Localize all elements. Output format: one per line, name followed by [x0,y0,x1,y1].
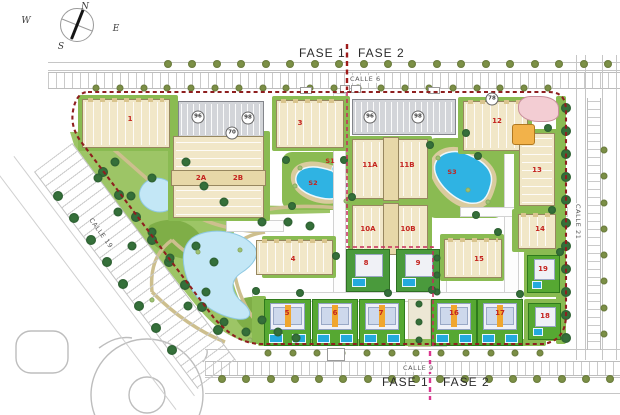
tree [182,158,191,167]
tree [164,60,172,68]
tree [521,85,528,92]
building-number-3: 3 [298,119,303,127]
tree [242,328,251,337]
tree [462,350,469,357]
tree [180,280,190,290]
tree [533,375,541,383]
pool-s3 [435,152,492,204]
tree [378,85,385,92]
tree [449,85,456,92]
tree [512,350,519,357]
tree [601,278,608,285]
villa-pool [505,334,518,343]
building-v8 [346,249,390,292]
tree [428,286,436,294]
park-plaza-inner [229,259,237,267]
tree [531,60,539,68]
villa-pool [533,328,544,336]
tree [509,375,517,383]
tree [416,319,423,326]
tree [238,248,243,253]
tree [537,350,544,357]
tree [220,198,229,207]
tree [252,287,260,295]
tree [315,375,323,383]
building-v5 [264,299,311,346]
tree [548,206,556,214]
tree [311,60,319,68]
pool-label-S2: S2 [308,179,317,187]
tree [286,60,294,68]
tree [416,337,423,344]
tree [487,350,494,357]
villa-pool [387,334,400,343]
fase1-top-label: FASE 1 [299,46,346,60]
tree [289,350,296,357]
building-number-2B: 2B [233,174,243,182]
tree [561,195,571,205]
gate-structure [351,85,361,93]
tree [558,375,566,383]
tree [604,60,612,68]
tree [296,289,304,297]
tree [292,334,301,343]
tree [118,279,128,289]
internal-road-spine-west [226,220,284,232]
villa-pool [364,334,377,343]
tree [330,85,337,92]
road-marker [300,87,312,94]
tree [284,218,293,227]
tree [516,290,524,298]
tree [506,60,514,68]
tree [69,213,79,223]
tree [150,298,155,303]
tree [561,172,571,182]
building-number-10A: 10A [360,225,375,233]
building-number-13: 13 [532,166,542,174]
building-11 [352,139,428,199]
fase2-top-label: FASE 2 [358,46,405,60]
building-number-5: 5 [285,309,290,317]
tree [482,60,490,68]
tree [556,248,564,256]
pool-label-S3: S3 [447,168,456,176]
tree [140,85,147,92]
tree [213,60,221,68]
tree [148,228,157,237]
parking-count-badge: 78 [486,93,499,106]
tree [291,375,299,383]
tree [601,252,608,259]
building-v16 [431,299,477,346]
tree [561,218,571,228]
compass-n: N [80,2,90,12]
gate-structure [340,85,350,93]
tree [601,199,608,206]
tree [344,199,349,204]
building-number-16: 16 [449,309,459,317]
tree [474,152,482,160]
tree [582,375,590,383]
villa-pool [352,278,366,287]
tree [258,218,267,227]
villa-pool [482,334,495,343]
villa-pool [340,334,353,343]
tree [413,350,420,357]
tree [472,211,480,219]
tree [213,325,223,335]
tree [466,188,471,193]
tree [402,85,409,92]
tree [555,60,563,68]
parking-count-96: 96 [364,111,377,124]
tree [601,304,608,311]
tree [134,301,144,311]
tree [416,301,423,308]
building-v6 [312,299,358,346]
tree [384,60,392,68]
building-number-15: 15 [474,255,484,263]
tree [494,228,502,236]
building-1 [82,99,170,148]
tree [93,85,100,92]
building-2 [173,136,264,218]
tree [561,287,571,297]
right-road-parking [587,98,601,350]
tree [94,174,103,183]
tree [601,331,608,338]
building-15 [444,239,502,278]
tree [202,288,211,297]
tree [248,338,253,343]
tree [298,166,303,171]
tree [438,350,445,357]
tree [561,126,571,136]
tree [218,375,226,383]
tree [184,302,193,311]
tree [601,147,608,154]
tree [196,250,201,255]
tree [335,60,343,68]
villa-wing [336,307,349,326]
tree [211,85,218,92]
fase2-bottom-label: FASE 2 [443,375,490,389]
tree [86,235,96,245]
building-pink [518,96,559,122]
tree [601,225,608,232]
road-marker [428,87,440,94]
tree [457,60,465,68]
compass-w: W [21,16,31,26]
tree [188,60,196,68]
tree [497,85,504,92]
villa-wing [383,307,396,326]
tree [282,156,290,164]
parking-count-98: 98 [412,111,425,124]
pool-label-S1: S1 [325,157,334,165]
building-number-6: 6 [333,309,338,317]
tree [580,60,588,68]
tree [306,222,315,231]
tree [340,156,348,164]
villa-pool [459,334,472,343]
tree [131,212,141,222]
building-v17 [477,299,523,346]
tree [166,254,175,263]
building-number-17: 17 [495,309,505,317]
tree [408,60,416,68]
tree [434,272,441,279]
villa-pool [532,281,543,289]
tree [200,182,209,191]
tree [388,350,395,357]
park-plaza [224,254,243,273]
tree [434,255,441,262]
building-number-19: 19 [538,265,548,273]
tree [293,184,298,189]
building-number-8: 8 [364,259,369,267]
site-plan-canvas: 196982A2B3969811A11B10A10B41213141589567… [0,0,620,415]
tree [364,375,372,383]
tree [348,193,356,201]
tree [360,60,368,68]
tree [267,375,275,383]
tree [473,85,480,92]
tree [128,242,137,251]
tree [265,350,272,357]
tree [237,60,245,68]
tree [561,264,571,274]
tree [127,192,136,201]
compass-needle [72,10,84,39]
tree [462,129,470,137]
building-v19 [527,255,560,293]
tree [114,190,124,200]
tree [561,333,571,343]
calle9-label: CALLE 9 [402,364,435,372]
tree [339,375,347,383]
tree [561,149,571,159]
villa-house [355,254,382,277]
tree [288,202,296,210]
building-number-11B: 11B [399,161,414,169]
tree [242,375,250,383]
building-number-9: 9 [416,259,421,267]
tree [426,141,434,149]
tree [384,289,392,297]
parking-count-badge: 70 [226,127,239,140]
building-3 [276,100,344,148]
building-number-11A: 11A [362,161,377,169]
building-connector [171,170,266,186]
tree [151,323,161,333]
building-connector [383,137,399,201]
villa-pool [402,278,416,287]
tree [606,375,614,383]
tree [486,200,491,205]
building-number-1: 1 [128,115,133,123]
building-number-14: 14 [535,225,545,233]
tree [433,60,441,68]
building-number-12: 12 [492,117,502,125]
building-number-7: 7 [379,309,384,317]
villa-pool [317,334,330,343]
tree [148,174,157,183]
villa-wing [289,307,302,326]
tree [561,310,571,320]
tree [259,85,266,92]
building-club [512,124,535,145]
building-connector [383,203,399,255]
villa-pool [436,334,449,343]
tree [545,85,552,92]
tree [167,345,177,355]
tree [332,252,340,260]
tree [111,158,120,167]
tree [220,318,229,327]
compass-rose: N W E S [0,0,140,60]
tree [116,85,123,92]
tree [561,103,571,113]
tree [544,124,552,132]
calle21-label: CALLE 21 [574,203,582,240]
parking-count-96: 96 [192,111,205,124]
tree [164,85,171,92]
tree [601,173,608,180]
tree [258,316,267,325]
building-number-4: 4 [291,255,296,263]
tree [210,258,219,267]
compass-s: S [58,42,64,52]
tree [314,350,321,357]
tree [102,257,112,267]
south-gate-structure [327,348,345,361]
tree [283,85,290,92]
tree [436,156,441,161]
tree [262,60,270,68]
parking-count-98: 98 [242,112,255,125]
building-number-10B: 10B [400,225,415,233]
tree [363,350,370,357]
building-v7 [359,299,405,346]
tree [114,208,123,217]
fase1-bottom-label: FASE 1 [382,375,429,389]
tree [53,191,63,201]
tree [197,302,207,312]
compass-e: E [112,24,120,34]
building-v18 [528,303,561,340]
tree [188,85,195,92]
building-number-18: 18 [540,312,550,320]
building-number-2A: 2A [196,174,206,182]
calle6-label: CALLE 6 [349,75,382,83]
tree [274,328,283,337]
tree [235,85,242,92]
